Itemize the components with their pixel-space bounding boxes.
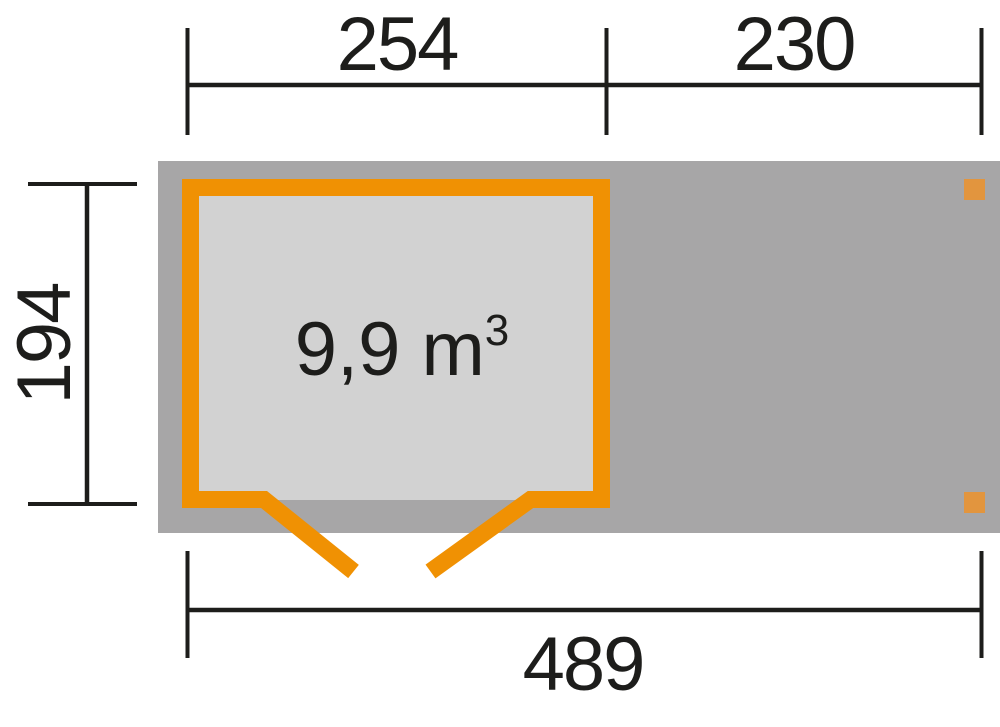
dimension-label-top-left: 254 xyxy=(337,2,459,87)
dimension-top xyxy=(188,28,982,135)
dimension-label-bottom: 489 xyxy=(523,622,644,707)
room-volume-label: 9,9 m3 xyxy=(295,306,510,392)
room-volume-value: 9,9 m xyxy=(295,307,485,392)
floor-plan-drawing: 254 230 194 489 9,9 m3 xyxy=(0,0,1000,727)
dimension-label-left: 194 xyxy=(2,283,87,405)
dimension-label-top-right: 230 xyxy=(734,2,855,87)
post-bottom-right xyxy=(964,492,985,513)
post-top-right xyxy=(964,179,985,200)
room-volume-exponent: 3 xyxy=(485,306,509,355)
floor-plan-page: 254 230 194 489 9,9 m3 xyxy=(0,0,1000,727)
